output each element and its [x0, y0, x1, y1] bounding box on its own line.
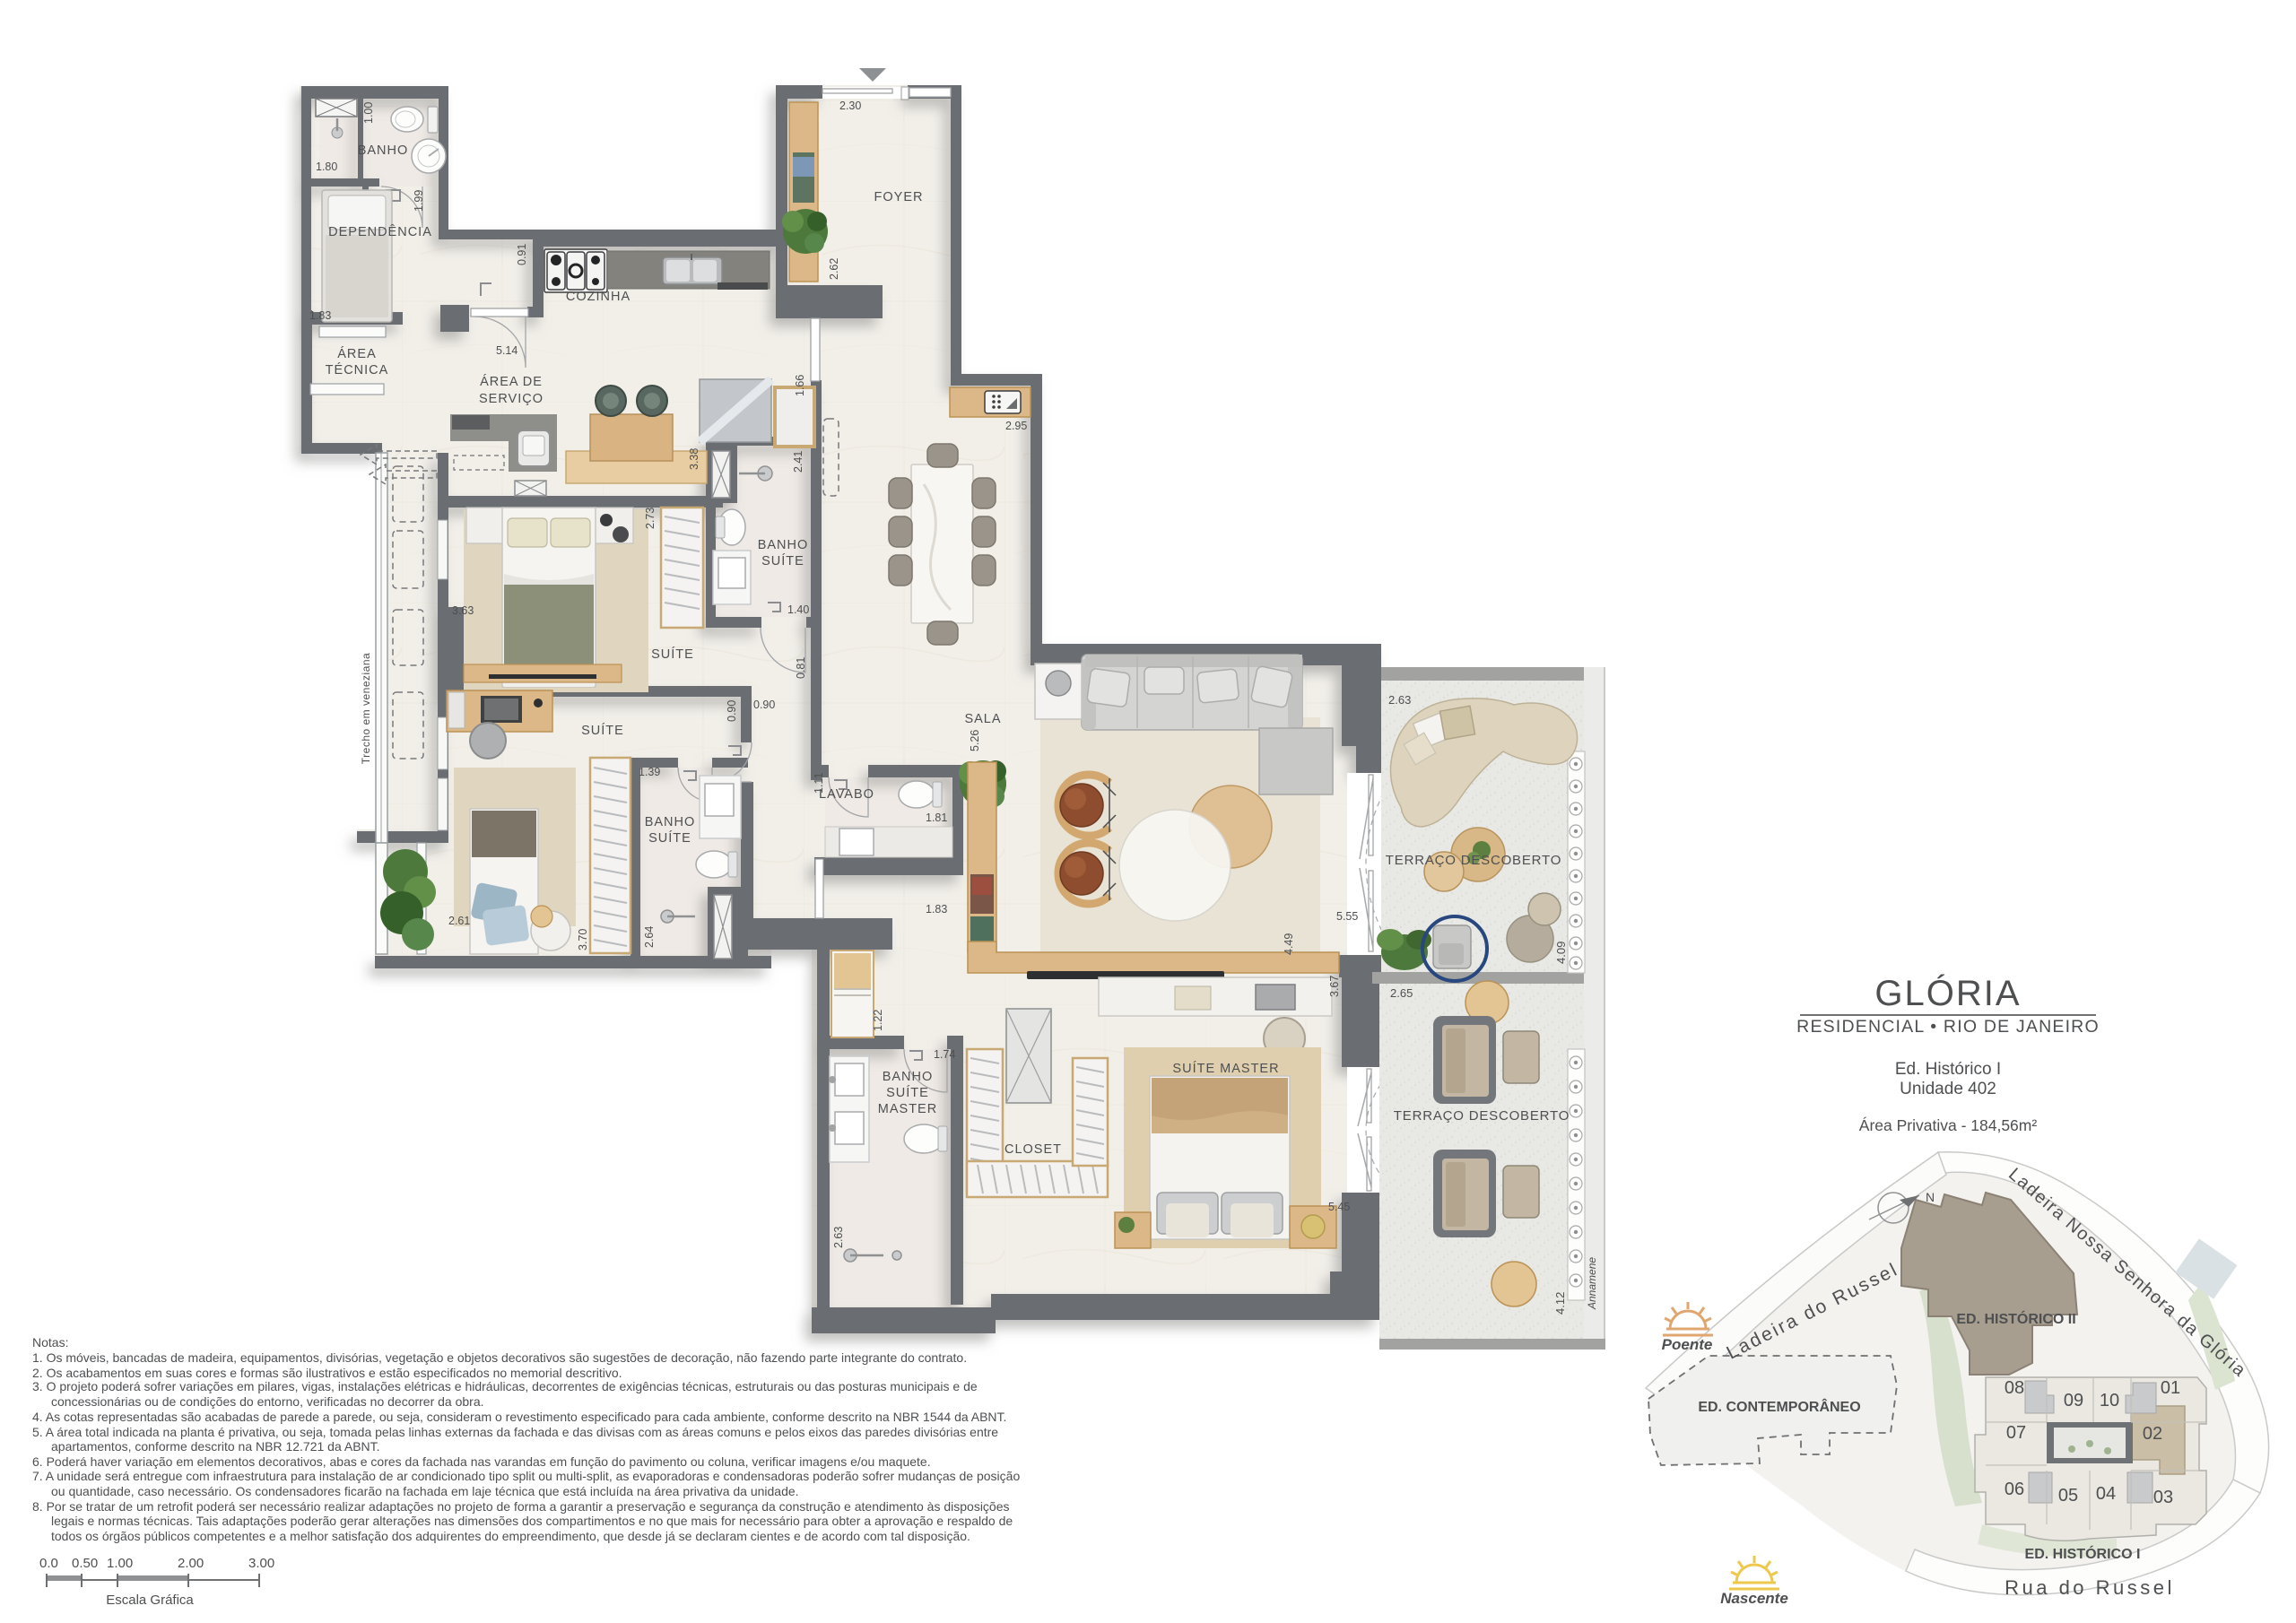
svg-text:7. A unidade será entregue com: 7. A unidade será entregue com infraestr… — [32, 1469, 1020, 1483]
svg-text:06: 06 — [2005, 1480, 2024, 1499]
svg-text:6. Poderá haver variação em el: 6. Poderá haver variação em elementos de… — [32, 1454, 931, 1469]
svg-text:1.00: 1.00 — [107, 1556, 133, 1571]
svg-text:0.0: 0.0 — [39, 1556, 58, 1571]
svg-text:04: 04 — [2096, 1484, 2116, 1504]
svg-text:COZINHA: COZINHA — [566, 290, 631, 304]
svg-text:Rua do Russel: Rua do Russel — [2005, 1576, 2175, 1599]
svg-text:ÁREA DE: ÁREA DE — [480, 374, 543, 389]
svg-text:3.63: 3.63 — [452, 604, 474, 617]
svg-text:DEPENDÊNCIA: DEPENDÊNCIA — [328, 224, 432, 239]
svg-text:2. Os acabamentos em suas core: 2. Os acabamentos em suas cores e formas… — [32, 1366, 622, 1380]
svg-text:BANHO: BANHO — [883, 1070, 934, 1084]
svg-text:BANHO: BANHO — [758, 538, 809, 552]
svg-text:0.91: 0.91 — [516, 244, 528, 265]
svg-text:Trecho em veneziana: Trecho em veneziana — [360, 653, 372, 764]
svg-text:SERVIÇO: SERVIÇO — [479, 392, 544, 406]
svg-text:Área Privativa - 184,56m²: Área Privativa - 184,56m² — [1859, 1116, 2038, 1134]
svg-text:08: 08 — [2005, 1378, 2024, 1398]
svg-text:ou quantidade, caso necessário: ou quantidade, caso necessário. Os conde… — [51, 1484, 799, 1498]
svg-text:N: N — [1926, 1190, 1935, 1204]
svg-text:0.90: 0.90 — [726, 700, 738, 722]
svg-text:0.90: 0.90 — [753, 699, 775, 711]
svg-text:1.81: 1.81 — [926, 811, 947, 824]
svg-text:todos os órgãos públicos compe: todos os órgãos públicos competentes e a… — [51, 1529, 970, 1543]
svg-text:BANHO: BANHO — [645, 815, 696, 829]
svg-text:ED. CONTEMPORÂNEO: ED. CONTEMPORÂNEO — [1698, 1398, 1860, 1415]
svg-text:Escala Gráfica: Escala Gráfica — [106, 1593, 194, 1608]
svg-text:5.14: 5.14 — [496, 344, 517, 357]
svg-text:05: 05 — [2058, 1486, 2078, 1506]
svg-text:1.66: 1.66 — [794, 375, 806, 396]
svg-text:ÁREA: ÁREA — [337, 346, 377, 361]
svg-text:1. Os móveis, bancadas de made: 1. Os móveis, bancadas de madeira, equip… — [32, 1350, 967, 1365]
svg-text:SUÍTE: SUÍTE — [581, 723, 624, 738]
svg-text:1.11: 1.11 — [813, 773, 825, 794]
svg-text:1.00: 1.00 — [362, 102, 375, 124]
svg-text:2.61: 2.61 — [448, 915, 470, 927]
svg-text:2.63: 2.63 — [1388, 693, 1411, 707]
svg-text:10: 10 — [2100, 1391, 2119, 1410]
svg-text:Annamene: Annamene — [1586, 1257, 1598, 1310]
svg-text:1.83: 1.83 — [926, 903, 947, 916]
svg-text:2.64: 2.64 — [643, 926, 656, 948]
svg-text:Ed. Histórico I: Ed. Histórico I — [1895, 1060, 2001, 1079]
svg-text:apartamentos, conforme descrit: apartamentos, conforme descrito na NBR 1… — [51, 1439, 380, 1454]
svg-text:TERRAÇO DESCOBERTO: TERRAÇO DESCOBERTO — [1394, 1108, 1570, 1124]
svg-text:3.00: 3.00 — [248, 1556, 274, 1571]
svg-text:FOYER: FOYER — [874, 190, 924, 204]
svg-text:SUÍTE: SUÍTE — [886, 1085, 929, 1100]
svg-text:SUÍTE: SUÍTE — [651, 647, 694, 662]
svg-text:5.55: 5.55 — [1336, 910, 1358, 923]
svg-text:Unidade 402: Unidade 402 — [1900, 1080, 1996, 1098]
svg-text:TÉCNICA: TÉCNICA — [326, 362, 389, 378]
svg-text:concessionárias ou de condiçõe: concessionárias ou de condições do entor… — [51, 1394, 484, 1409]
svg-text:SUÍTE: SUÍTE — [648, 830, 691, 846]
svg-text:LAVABO: LAVABO — [819, 787, 874, 802]
svg-text:CLOSET: CLOSET — [1004, 1142, 1062, 1157]
svg-text:4.12: 4.12 — [1553, 1292, 1567, 1315]
svg-text:TERRAÇO DESCOBERTO: TERRAÇO DESCOBERTO — [1386, 853, 1561, 868]
svg-text:4.49: 4.49 — [1283, 933, 1295, 955]
svg-text:SUÍTE MASTER: SUÍTE MASTER — [1172, 1061, 1279, 1076]
svg-text:09: 09 — [2064, 1391, 2083, 1410]
svg-text:02: 02 — [2143, 1424, 2162, 1444]
svg-text:5. A área total indicada na pl: 5. A área total indicada na planta é pri… — [32, 1425, 998, 1439]
svg-text:2.30: 2.30 — [839, 100, 861, 112]
svg-text:Poente: Poente — [1662, 1336, 1713, 1353]
svg-text:RESIDENCIAL • RIO DE JANEIRO: RESIDENCIAL • RIO DE JANEIRO — [1796, 1017, 2100, 1037]
svg-text:ED. HISTÓRICO II: ED. HISTÓRICO II — [1956, 1310, 2075, 1327]
svg-text:Nascente: Nascente — [1720, 1590, 1788, 1607]
svg-text:3.67: 3.67 — [1328, 976, 1341, 997]
svg-text:BANHO: BANHO — [358, 143, 409, 158]
svg-text:5.26: 5.26 — [969, 730, 981, 751]
svg-text:2.63: 2.63 — [832, 1227, 845, 1248]
svg-text:2.41: 2.41 — [792, 451, 804, 473]
svg-text:SALA: SALA — [964, 712, 1001, 726]
svg-text:1.40: 1.40 — [787, 603, 809, 616]
svg-text:1.99: 1.99 — [413, 190, 425, 212]
svg-text:8. Por se tratar de um retrofi: 8. Por se tratar de um retrofit poderá s… — [32, 1499, 1010, 1514]
svg-text:2.62: 2.62 — [828, 258, 840, 280]
svg-text:3.38: 3.38 — [688, 448, 700, 470]
svg-text:1.74: 1.74 — [934, 1048, 955, 1061]
svg-text:2.00: 2.00 — [178, 1556, 204, 1571]
svg-text:legais e normas técnicas. Tais: legais e normas técnicas. Tais adaptaçõe… — [51, 1514, 1013, 1528]
svg-text:GLÓRIA: GLÓRIA — [1874, 973, 2021, 1013]
svg-text:MASTER: MASTER — [878, 1102, 937, 1116]
svg-text:1.80: 1.80 — [316, 161, 337, 173]
svg-text:4.09: 4.09 — [1554, 942, 1568, 964]
svg-text:4. As cotas representadas são: 4. As cotas representadas são acabadas d… — [32, 1410, 1006, 1424]
svg-text:1.22: 1.22 — [872, 1010, 884, 1031]
svg-text:3. O projeto poderá sofrer var: 3. O projeto poderá sofrer variações em … — [32, 1379, 978, 1393]
svg-text:ED. HISTÓRICO I: ED. HISTÓRICO I — [2025, 1545, 2141, 1562]
svg-text:01: 01 — [2161, 1378, 2180, 1398]
svg-text:07: 07 — [2006, 1423, 2026, 1443]
svg-text:03: 03 — [2153, 1488, 2173, 1507]
svg-text:2.73: 2.73 — [644, 508, 657, 529]
svg-text:2.65: 2.65 — [1390, 986, 1413, 1000]
svg-text:3.70: 3.70 — [577, 929, 589, 950]
svg-text:2.95: 2.95 — [1005, 420, 1027, 432]
svg-text:1.39: 1.39 — [639, 766, 660, 778]
svg-text:0.50: 0.50 — [72, 1556, 98, 1571]
svg-text:Notas:: Notas: — [32, 1335, 68, 1350]
svg-text:1.83: 1.83 — [309, 309, 331, 322]
svg-text:5.45: 5.45 — [1328, 1201, 1350, 1213]
svg-text:SUÍTE: SUÍTE — [761, 553, 804, 568]
svg-text:0.81: 0.81 — [795, 657, 807, 679]
